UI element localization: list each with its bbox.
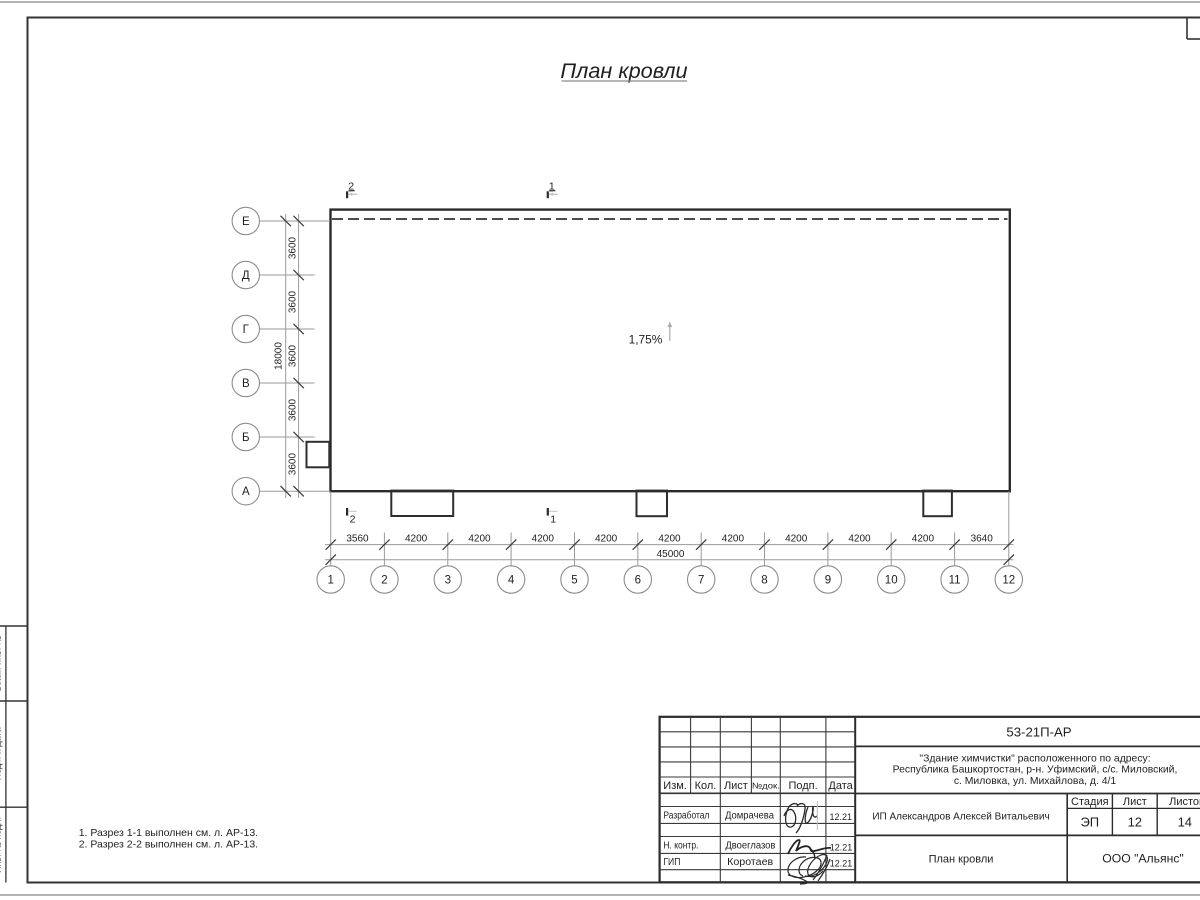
svg-text:Д: Д	[242, 270, 250, 282]
svg-text:12: 12	[1002, 575, 1015, 587]
svg-text:3600: 3600	[288, 398, 299, 421]
svg-text:ГИП: ГИП	[663, 857, 680, 868]
svg-text:11: 11	[949, 575, 961, 587]
svg-text:ЭП: ЭП	[1080, 815, 1099, 830]
svg-text:Инв. № подл.: Инв. № подл.	[0, 817, 3, 873]
svg-text:12.21: 12.21	[830, 842, 853, 852]
svg-text:Б: Б	[242, 432, 250, 444]
svg-text:4200: 4200	[848, 534, 871, 545]
svg-text:Листов: Листов	[1169, 796, 1200, 808]
svg-text:3600: 3600	[288, 236, 299, 259]
svg-text:Дата: Дата	[828, 780, 853, 792]
svg-text:18000: 18000	[273, 342, 284, 370]
svg-text:3560: 3560	[346, 534, 369, 545]
svg-text:Изм.: Изм.	[663, 780, 687, 792]
svg-text:3600: 3600	[288, 453, 299, 476]
svg-text:Стадия: Стадия	[1071, 796, 1109, 808]
svg-text:1: 1	[550, 514, 556, 526]
svg-text:3: 3	[445, 575, 451, 587]
svg-text:План кровли: План кровли	[929, 854, 994, 866]
svg-text:Подп. и дата: Подп. и дата	[0, 727, 3, 780]
svg-text:Коротаев: Коротаев	[727, 857, 773, 868]
svg-text:3600: 3600	[288, 344, 299, 367]
svg-text:Республика Башкортостан, р-н.: Республика Башкортостан, р-н. Уфимский, …	[893, 764, 1178, 776]
svg-text:3640: 3640	[971, 534, 994, 545]
svg-text:Лист: Лист	[724, 780, 748, 792]
svg-text:7: 7	[698, 575, 704, 587]
svg-text:ИП Александров Алексей Виталье: ИП Александров Алексей Витальевич	[872, 812, 1049, 823]
svg-text:4200: 4200	[785, 534, 808, 545]
svg-text:Кол.: Кол.	[695, 780, 717, 792]
svg-text:9: 9	[825, 575, 831, 587]
svg-text:Домрачева: Домрачева	[725, 810, 775, 821]
svg-text:В: В	[242, 378, 250, 390]
svg-text:1: 1	[327, 575, 333, 587]
svg-text:4200: 4200	[595, 534, 618, 545]
svg-text:1. Разрез 1-1 выполнен см. л.: 1. Разрез 1-1 выполнен см. л. АР-13.	[79, 827, 258, 839]
svg-text:Е: Е	[242, 216, 250, 228]
svg-text:4200: 4200	[405, 534, 428, 545]
svg-text:6: 6	[635, 575, 641, 587]
svg-text:2: 2	[350, 514, 356, 526]
svg-text:45000: 45000	[657, 549, 685, 560]
svg-text:4200: 4200	[722, 534, 745, 545]
svg-text:1,75%: 1,75%	[629, 333, 663, 347]
svg-text:А: А	[242, 486, 250, 498]
svg-text:"Здание химчистки" расположенн: "Здание химчистки" расположенного по адр…	[919, 754, 1150, 765]
svg-text:4200: 4200	[468, 534, 491, 545]
svg-text:12: 12	[1128, 815, 1142, 830]
svg-text:Разработал: Разработал	[663, 810, 709, 821]
svg-text:Двоеглазов: Двоеглазов	[725, 841, 775, 852]
svg-text:12.21: 12.21	[830, 858, 853, 868]
svg-text:14: 14	[1178, 815, 1192, 830]
svg-text:Лист: Лист	[1123, 796, 1147, 808]
svg-text:с. Миловка, ул. Михайлова, д.: с. Миловка, ул. Михайлова, д. 4/1	[954, 776, 1117, 787]
svg-text:ООО "Альянс": ООО "Альянс"	[1102, 852, 1184, 866]
svg-text:5: 5	[571, 575, 577, 587]
svg-text:8: 8	[761, 575, 767, 587]
svg-text:4200: 4200	[912, 534, 935, 545]
svg-text:3600: 3600	[288, 290, 299, 313]
svg-text:Взам. инв. №: Взам. инв. №	[0, 635, 3, 691]
svg-text:План кровли: План кровли	[560, 58, 687, 83]
svg-text:4: 4	[508, 575, 515, 587]
svg-text:12.21: 12.21	[830, 812, 853, 822]
svg-text:Г: Г	[243, 324, 250, 336]
svg-text:53-21П-АР: 53-21П-АР	[1006, 725, 1071, 740]
svg-text:2: 2	[381, 575, 387, 587]
svg-text:№док.: №док.	[752, 781, 780, 791]
svg-text:Подп.: Подп.	[788, 780, 817, 792]
svg-text:Н. контр.: Н. контр.	[663, 841, 698, 852]
svg-text:4200: 4200	[532, 534, 555, 545]
svg-text:2. Разрез 2-2 выполнен см. л.: 2. Разрез 2-2 выполнен см. л. АР-13.	[79, 839, 258, 851]
svg-text:4200: 4200	[658, 534, 681, 545]
svg-text:10: 10	[885, 575, 898, 587]
